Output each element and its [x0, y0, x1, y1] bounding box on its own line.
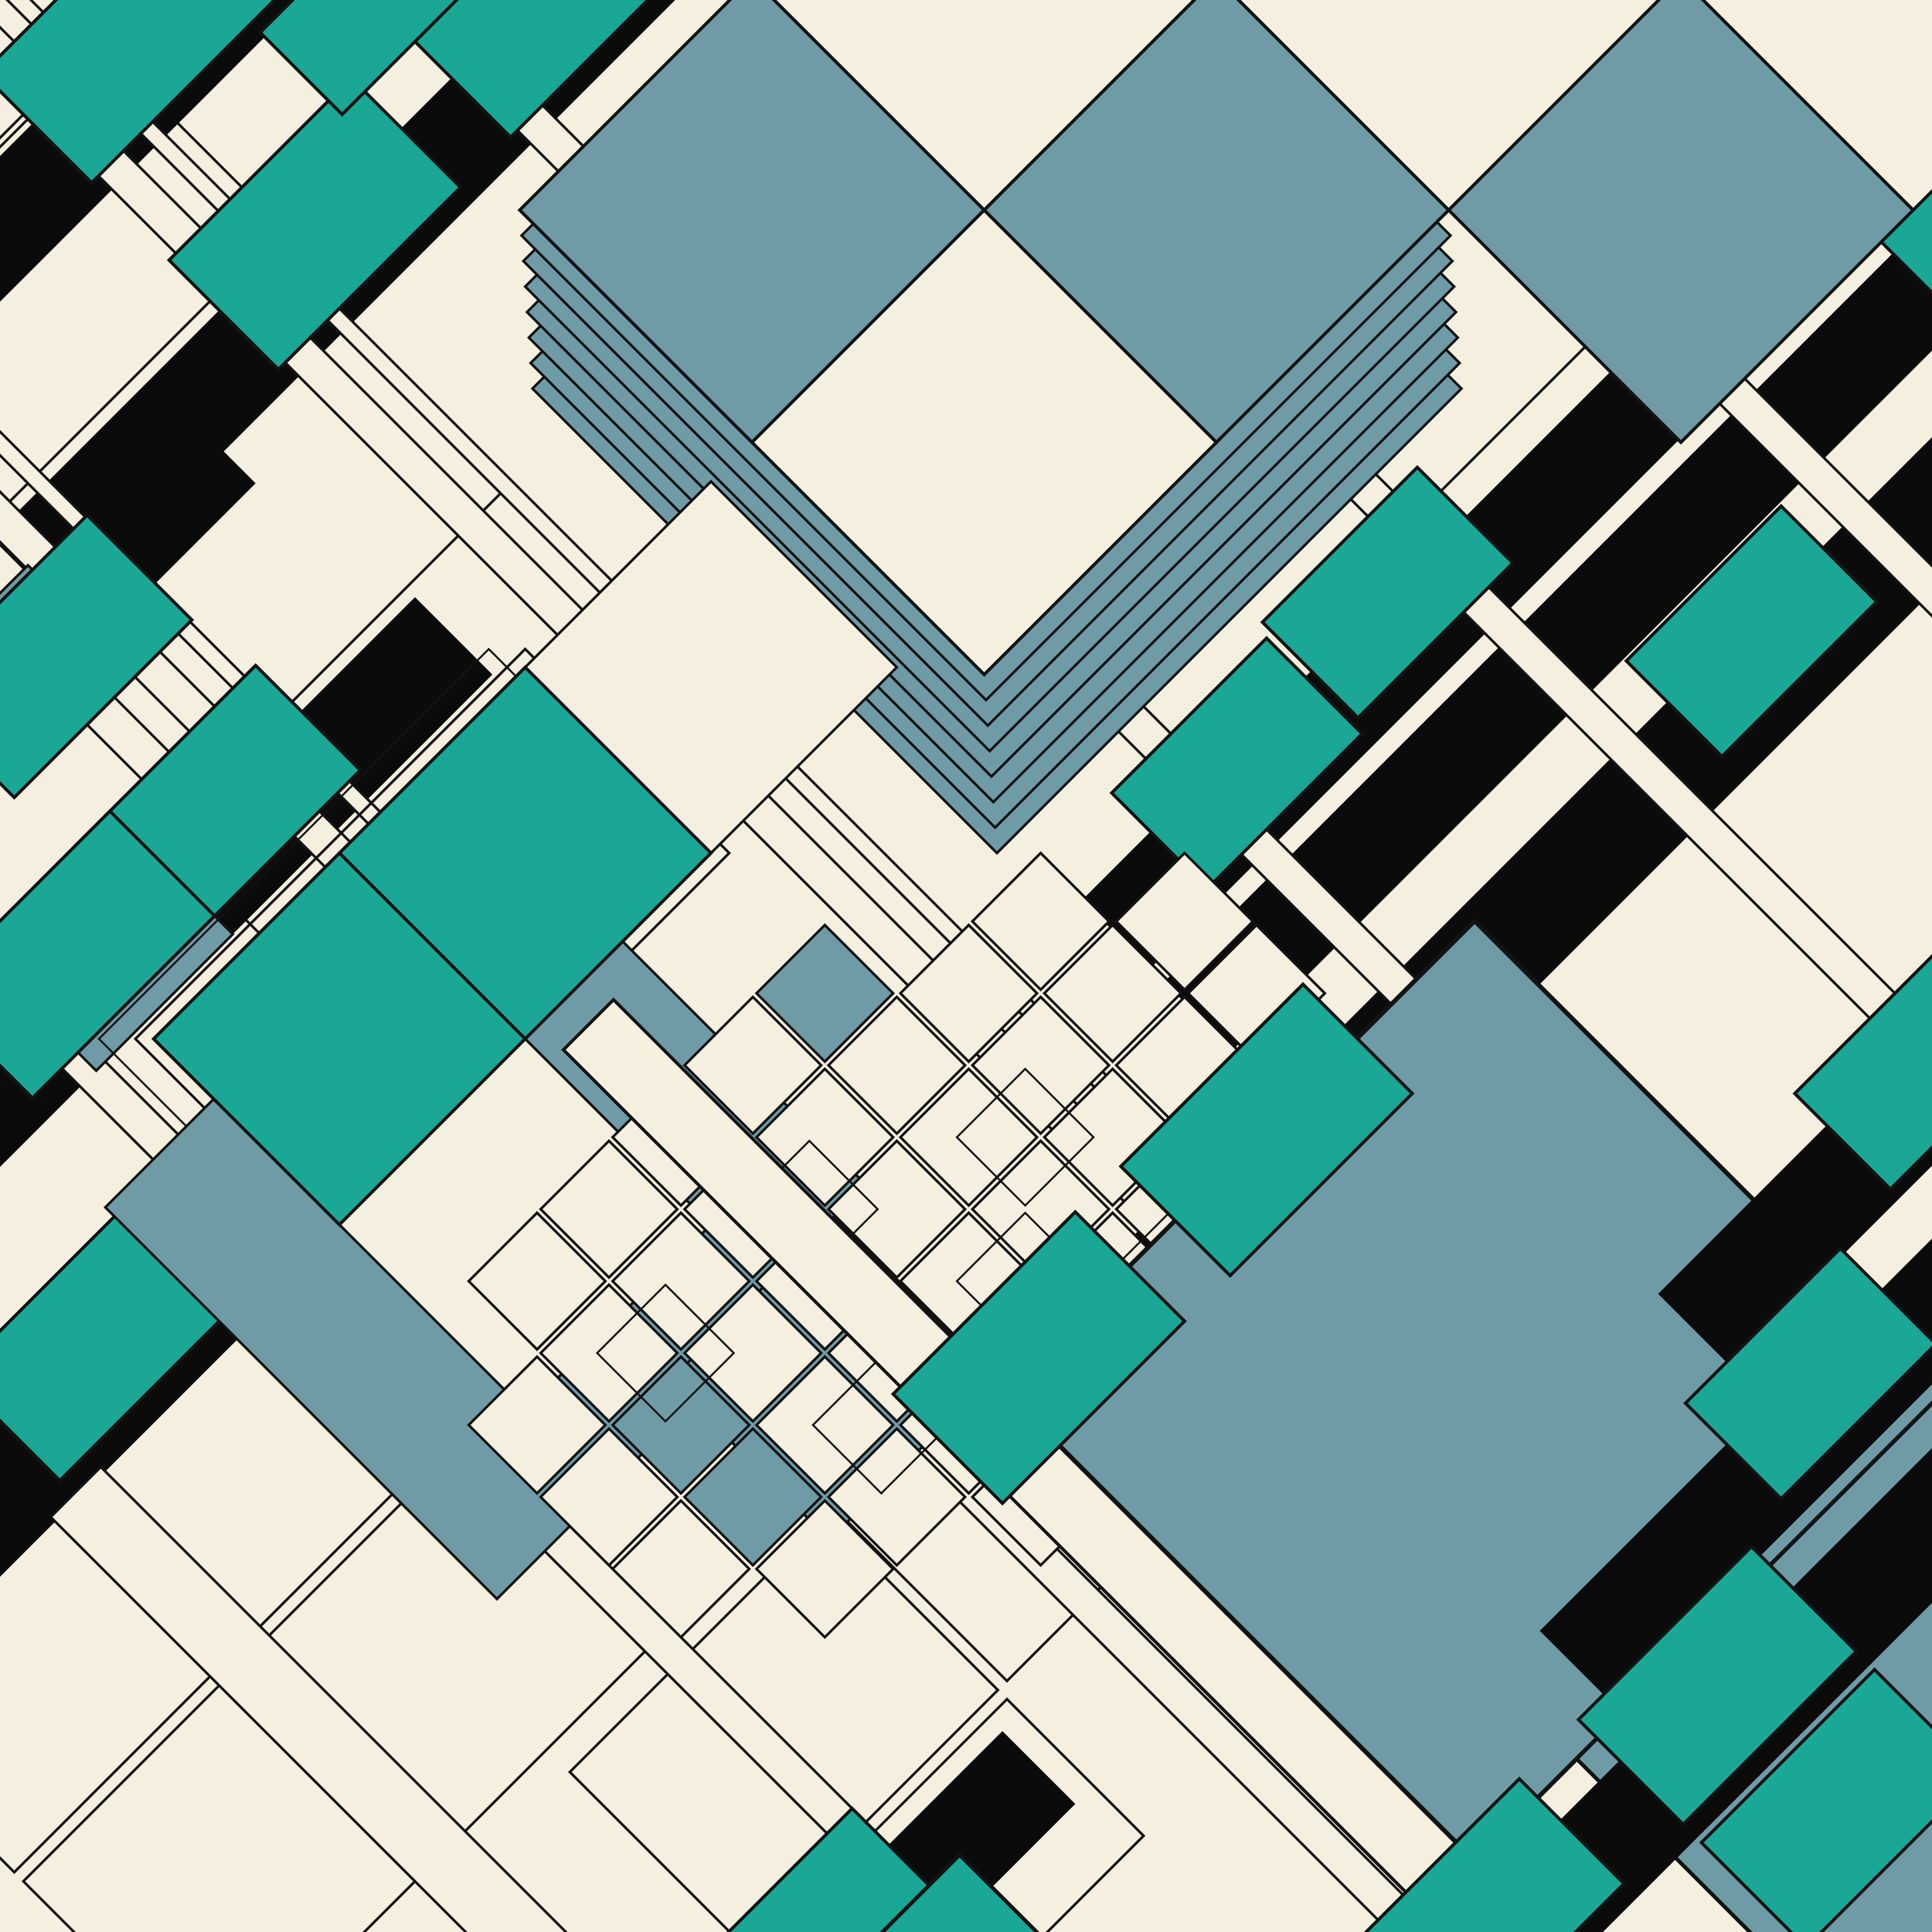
abstract-geometric-artwork — [0, 0, 1932, 1932]
artwork-stage — [0, 0, 1932, 1932]
